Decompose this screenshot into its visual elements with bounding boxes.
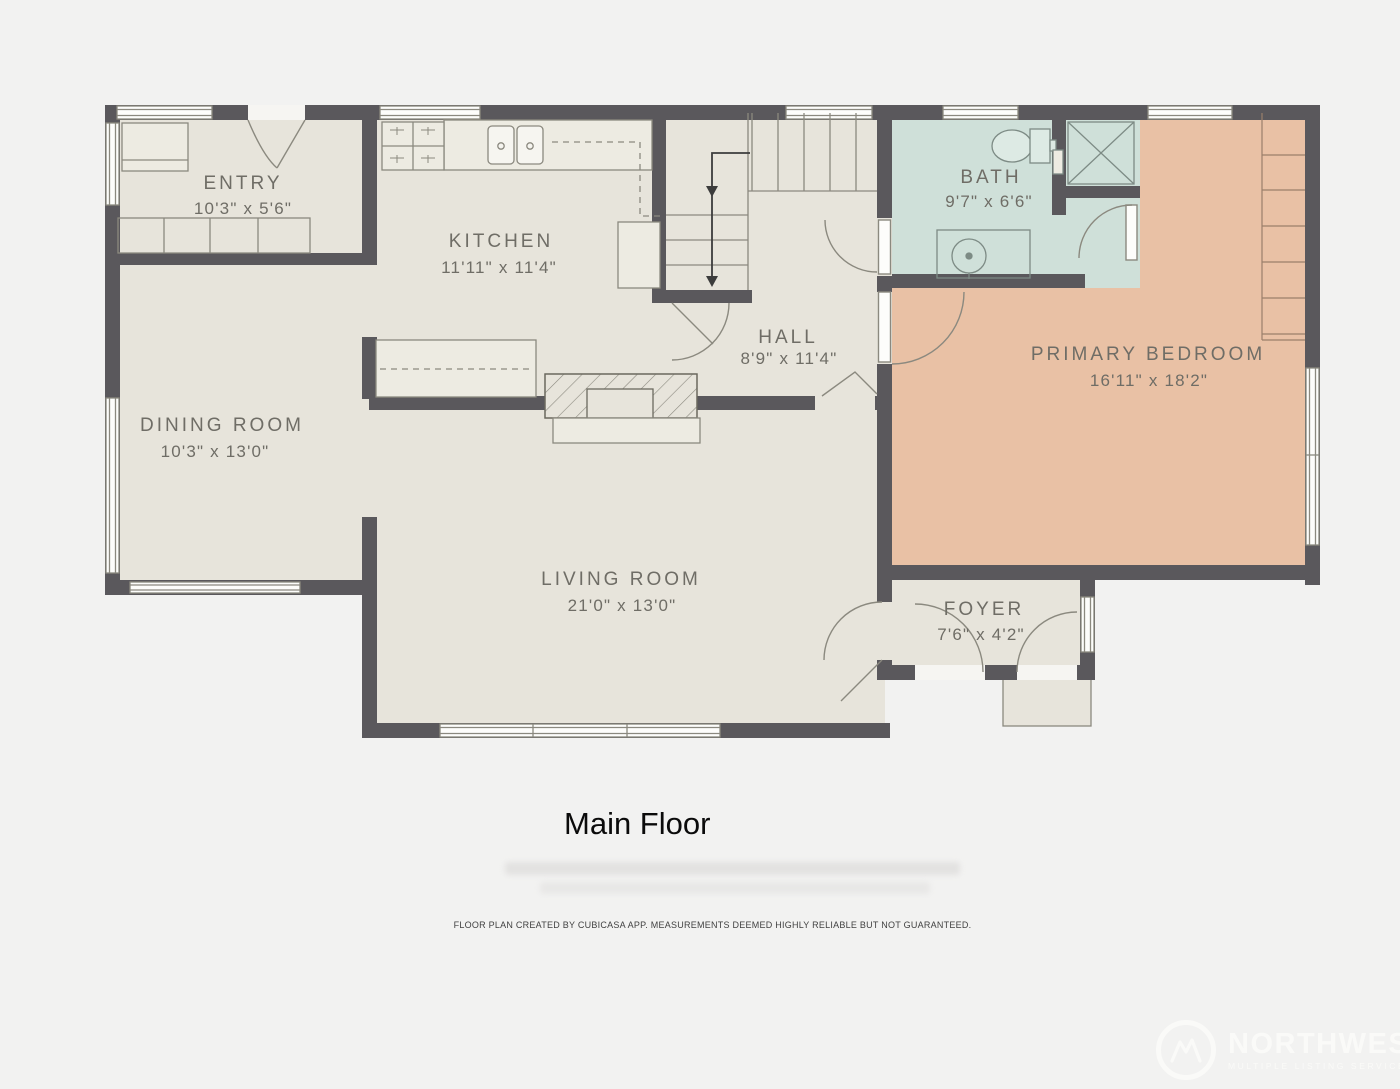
dining-room-dims: 10'3" x 13'0" [161, 442, 270, 461]
porch [1003, 678, 1091, 726]
bath-dims: 9'7" x 6'6" [945, 192, 1033, 211]
window [380, 106, 480, 119]
window [106, 398, 119, 573]
floor-plan-page: ENTRY 10'3" x 5'6" KITCHEN 11'11" x 11'4… [0, 0, 1400, 1089]
living-floor [369, 396, 885, 730]
window [1081, 597, 1094, 652]
foyer-floor [885, 572, 1093, 672]
window [440, 724, 720, 737]
watermark-tagline: MULTIPLE LISTING SERVICE [1228, 1061, 1400, 1071]
bath-name: BATH [960, 167, 1021, 188]
door-panel [879, 220, 891, 274]
floor-title: Main Floor [564, 806, 710, 842]
foyer-name: FOYER [944, 599, 1024, 620]
window [106, 123, 119, 205]
kitchen-pantry [618, 222, 660, 288]
window [1148, 106, 1232, 119]
primary-bedroom-name: PRIMARY BEDROOM [1031, 344, 1265, 365]
dining-room-name: DINING ROOM [140, 415, 304, 436]
nwmls-logo-icon [1156, 1020, 1216, 1080]
window [117, 106, 212, 119]
fireplace-icon [545, 374, 700, 443]
kitchen-dims: 11'11" x 11'4" [441, 258, 557, 277]
living-room-dims: 21'0" x 13'0" [568, 596, 677, 615]
entry-name: ENTRY [203, 173, 282, 194]
toilet-icon [992, 129, 1056, 163]
entry-dims: 10'3" x 5'6" [194, 199, 292, 218]
watermark-brand: NORTHWEST [1228, 1030, 1400, 1059]
primary-bedroom-dims: 16'11" x 18'2" [1090, 371, 1208, 390]
window [130, 582, 300, 593]
door-panel [1126, 205, 1137, 260]
kitchen-name: KITCHEN [449, 231, 553, 252]
door-panel [879, 292, 891, 362]
foyer-dims: 7'6" x 4'2" [937, 625, 1025, 644]
kitchen-counter [444, 120, 652, 170]
entry-cabinet [122, 123, 188, 171]
living-room-name: LIVING ROOM [541, 569, 701, 590]
window [1306, 368, 1319, 545]
window [943, 106, 1018, 119]
watermark: NORTHWEST MULTIPLE LISTING SERVICE [1156, 1020, 1400, 1080]
disclaimer-text: FLOOR PLAN CREATED BY CUBICASA APP. MEAS… [400, 920, 1025, 930]
stove-icon [382, 122, 444, 170]
window [786, 106, 872, 119]
hall-name: HALL [758, 327, 818, 348]
hall-dims: 8'9" x 11'4" [741, 349, 838, 368]
